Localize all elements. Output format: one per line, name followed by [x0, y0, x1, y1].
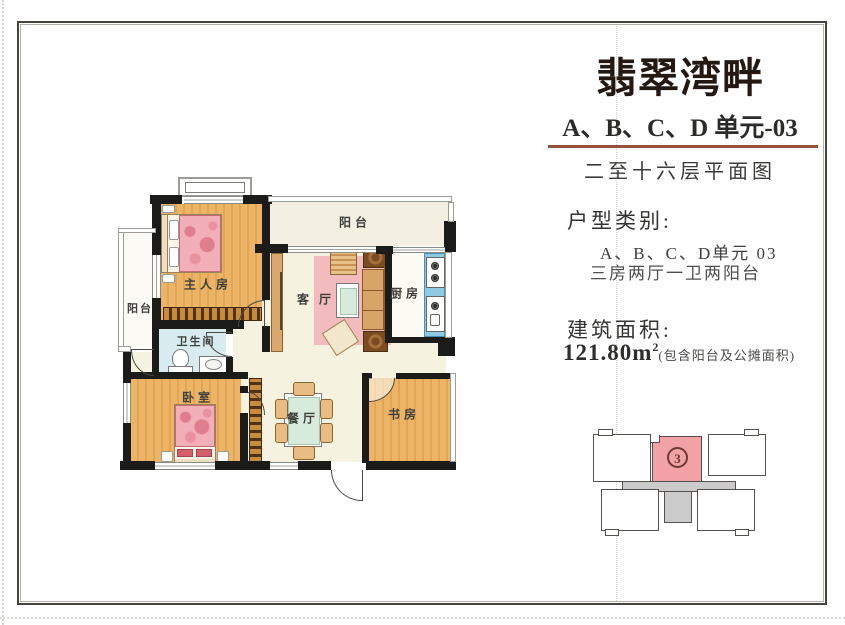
keyplan-unit-number: 3	[667, 447, 688, 468]
keyplan-notch	[651, 435, 660, 443]
keyplan-notch	[605, 529, 619, 536]
keyplan-block	[697, 489, 755, 531]
keyplan-core	[664, 491, 692, 523]
keyplan-notch	[735, 529, 749, 536]
keyplan-notch	[598, 429, 613, 436]
keyplan-block	[601, 489, 659, 531]
key-plan: 3	[0, 0, 845, 625]
brochure-page: 阳台 主人房 阳台 客厅 厨房 卫生间 卧室 餐厅 书房 翡翠湾畔 A、B、C、…	[0, 0, 845, 625]
info-panel: 翡翠湾畔 A、B、C、D 单元-03 二至十六层平面图 户型类别: A、B、C、…	[0, 0, 845, 625]
keyplan-block	[708, 434, 766, 476]
keyplan-block	[593, 434, 651, 482]
keyplan-notch	[744, 429, 759, 436]
